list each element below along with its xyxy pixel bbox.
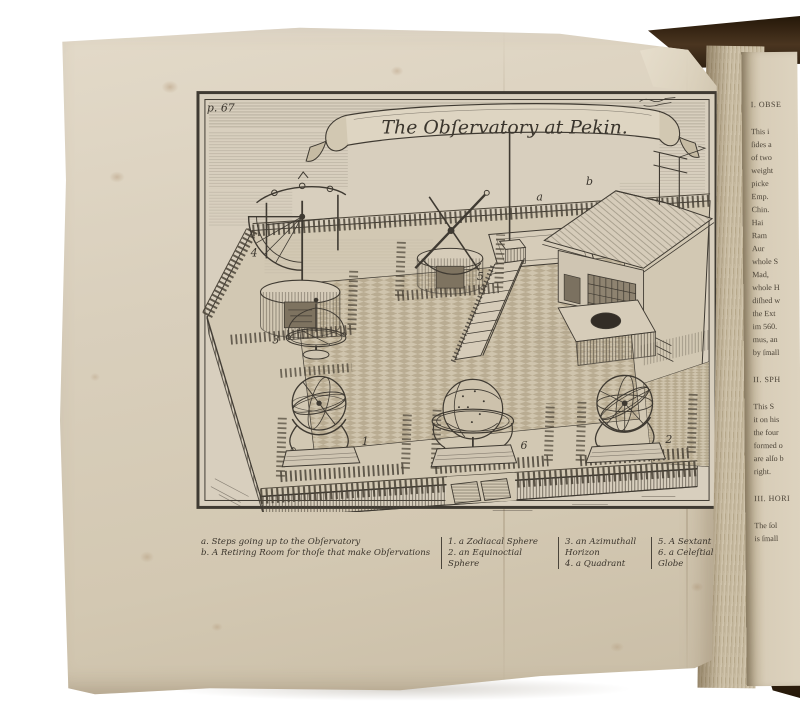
caption-line: 1. a Zodiacal Sphere xyxy=(448,537,554,548)
caption-line: 4. a Quadrant xyxy=(565,559,647,570)
label-sextant-5: 5 xyxy=(477,270,484,283)
caption-column-spheres: 1. a Zodiacal Sphere 2. an Equinoctial S… xyxy=(441,537,558,569)
label-quadrant-4: 4 xyxy=(250,246,258,259)
page-number-label: p. 67 xyxy=(207,101,235,114)
facing-page-text-fragments: I. OBSEThis iſides aof twoweightpickeEmp… xyxy=(741,52,800,545)
observatory-engraving: The Obſervatory at Pekin. p. 67 xyxy=(195,88,719,512)
front-trapdoor-steps xyxy=(445,473,516,505)
label-retiring-room-b: b xyxy=(586,175,593,188)
plate-title: The Obſervatory at Pekin. xyxy=(381,117,627,138)
book-photograph: I. OBSEThis iſides aof twoweightpickeEmp… xyxy=(0,0,800,725)
label-zodiacal-sphere-1: 1 xyxy=(362,435,369,448)
label-azimuthal-horizon-3: 3 xyxy=(272,334,279,347)
facing-page-sliver: I. OBSEThis iſides aof twoweightpickeEmp… xyxy=(741,52,800,686)
label-celestial-globe-6: 6 xyxy=(521,439,528,452)
plate-page: The Obſervatory at Pekin. p. 67 xyxy=(55,25,720,697)
caption-line: b. A Retiring Room for thoſe that make O… xyxy=(201,548,437,559)
label-steps-a: a xyxy=(536,191,543,204)
caption-column-letters: a. Steps going up to the Obſervatory b. … xyxy=(195,537,441,569)
plate-caption: a. Steps going up to the Obſervatory b. … xyxy=(195,537,723,569)
caption-line: 2. an Equinoctial Sphere xyxy=(448,548,554,570)
caption-column-horizon-quadrant: 3. an Azimuthall Horizon 4. a Quadrant xyxy=(558,537,651,569)
caption-line: a. Steps going up to the Obſervatory xyxy=(201,537,437,548)
caption-line: 3. an Azimuthall Horizon xyxy=(565,537,647,559)
label-equinoctial-sphere-2: 2 xyxy=(664,433,672,446)
